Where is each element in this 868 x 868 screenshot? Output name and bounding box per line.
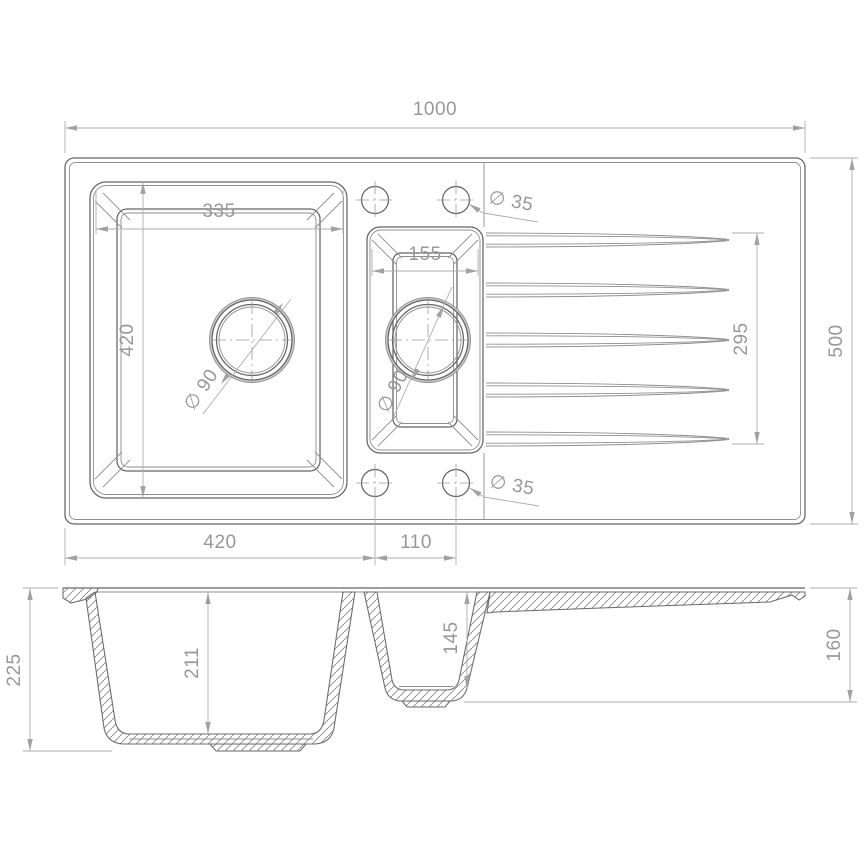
drainer-grooves — [486, 233, 729, 446]
drainer-groove-1 — [486, 233, 729, 247]
sink-inner-edge — [70, 163, 801, 520]
dim-overall-depth-label: 500 — [826, 324, 847, 357]
sink-technical-drawing: 1000 500 335 420 — [0, 0, 868, 868]
dim-hole-spacing-label: 110 — [400, 532, 432, 553]
section-bowl1-drain-boss — [210, 744, 306, 751]
dim-edge-to-hole-label: 420 — [203, 532, 236, 553]
section-drainer-slab — [487, 592, 805, 613]
dim-drainer-end-height-label: 160 — [824, 628, 845, 661]
dim-edge-to-hole: 420 — [65, 500, 375, 565]
section-view: 225 211 145 160 — [4, 588, 857, 751]
dim-drainer-grooves: 295 — [731, 233, 764, 444]
tap-hole-top-left — [356, 181, 394, 219]
section-bowl2-drain-boss — [402, 701, 450, 707]
section-bowl2-wall — [364, 592, 490, 701]
tap-hole-top-right — [437, 181, 475, 219]
dim-overall-depth: 500 — [810, 158, 858, 524]
dim-bowl1-depth-label: 211 — [182, 647, 203, 679]
tap-hole-bottom-left — [356, 464, 394, 502]
dim-bowl2-width: 155 — [372, 244, 478, 276]
callout-bowl2-drain-label: ∅ 90 — [373, 367, 413, 417]
dim-overall-width-label: 1000 — [413, 99, 457, 120]
dim-drainer-grooves-label: 295 — [731, 322, 752, 355]
callout-bowl1-drain-label: ∅ 90 — [180, 365, 223, 414]
dim-total-height-label: 225 — [4, 653, 25, 686]
drainer-groove-4 — [486, 383, 729, 397]
dim-hole-spacing: 110 — [375, 500, 456, 565]
callout-tap-hole-top: ∅ 35 — [468, 187, 538, 222]
drainer-groove-5 — [486, 432, 729, 446]
drainer-groove-3 — [486, 333, 729, 347]
dim-bowl2-depth-label: 145 — [441, 621, 462, 654]
callout-tap-hole-top-label: ∅ 35 — [487, 187, 535, 215]
section-bowl1-wall — [86, 592, 355, 744]
sink-technical-drawing-page: 1000 500 335 420 — [0, 0, 868, 868]
tap-hole-bottom-right — [437, 464, 475, 502]
dim-overall-width: 1000 — [65, 99, 805, 153]
dim-bowl1-width: 335 — [96, 190, 343, 234]
dim-bowl2-width-label: 155 — [408, 244, 441, 265]
plan-view: 1000 500 335 420 — [65, 99, 858, 565]
callout-tap-hole-bottom: ∅ 35 — [469, 471, 539, 506]
bowl1-drain — [210, 298, 295, 383]
dim-bowl1-depth: 211 — [182, 592, 211, 734]
dim-bowl1-length-label: 420 — [117, 323, 138, 356]
dim-bowl1-width-label: 335 — [202, 201, 235, 222]
callout-tap-hole-bottom-label: ∅ 35 — [488, 471, 536, 499]
drainer-groove-2 — [486, 283, 729, 297]
